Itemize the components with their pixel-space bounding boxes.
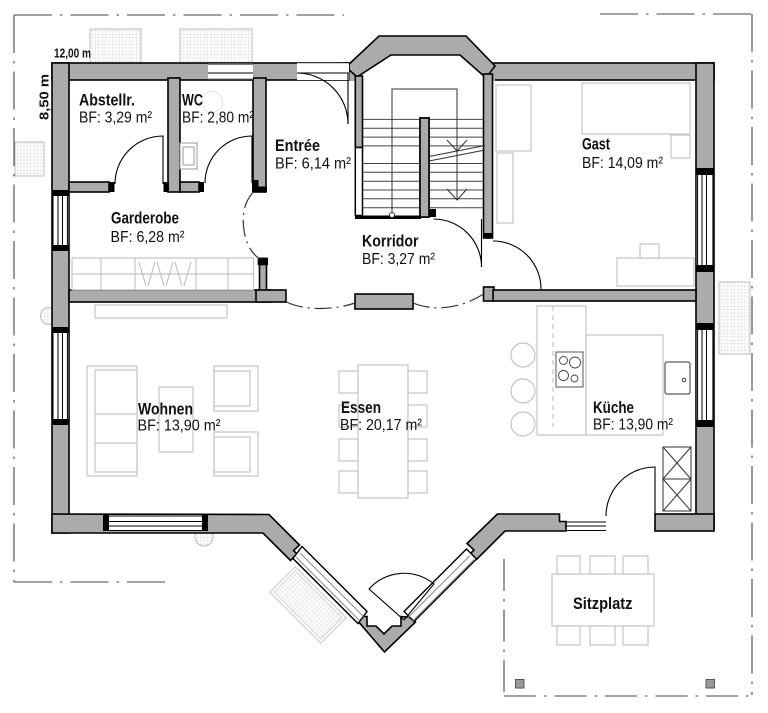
- svg-text:BF: 6,14 m²: BF: 6,14 m²: [275, 156, 352, 173]
- svg-text:Gast: Gast: [582, 135, 610, 154]
- svg-text:Entrée: Entrée: [275, 136, 320, 155]
- svg-text:Essen: Essen: [341, 398, 381, 417]
- svg-text:WC: WC: [182, 91, 203, 110]
- svg-text:BF: 13,90 m²: BF: 13,90 m²: [593, 417, 674, 434]
- svg-text:BF: 3,27 m²: BF: 3,27 m²: [362, 251, 436, 268]
- svg-text:Abstellr.: Abstellr.: [79, 91, 135, 110]
- svg-text:BF: 2,80 m²: BF: 2,80 m²: [182, 110, 255, 127]
- svg-text:8,50 m: 8,50 m: [37, 74, 52, 120]
- svg-text:BF: 20,17 m²: BF: 20,17 m²: [340, 417, 423, 434]
- svg-text:BF: 13,90 m²: BF: 13,90 m²: [138, 418, 222, 435]
- svg-text:12,00 m: 12,00 m: [54, 46, 91, 61]
- svg-text:Sitzplatz: Sitzplatz: [573, 594, 633, 613]
- svg-text:Korridor: Korridor: [362, 232, 419, 251]
- svg-text:BF: 3,29 m²: BF: 3,29 m²: [79, 110, 153, 127]
- svg-text:Garderobe: Garderobe: [111, 209, 179, 228]
- svg-text:Wohnen: Wohnen: [138, 400, 193, 419]
- svg-text:BF: 14,09 m²: BF: 14,09 m²: [582, 155, 664, 172]
- svg-text:Küche: Küche: [593, 398, 634, 417]
- svg-text:BF: 6,28 m²: BF: 6,28 m²: [111, 229, 186, 246]
